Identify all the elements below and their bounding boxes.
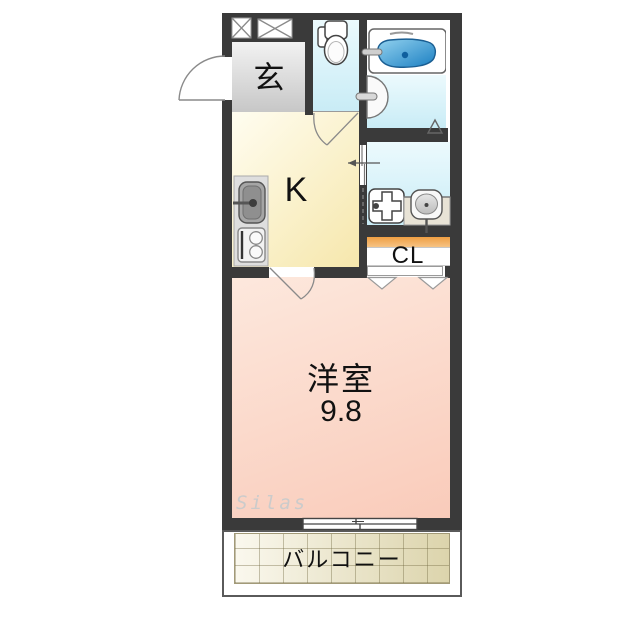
wall-right [450,13,462,530]
wall-top-thin [305,13,462,20]
toilet-floor [313,19,359,112]
kitchen-room-door-opening [269,268,314,277]
wall-closet-right-stub [445,266,450,278]
entrance-door-icon [179,56,225,100]
wall-left-lower [222,100,232,530]
wall-kitchen-bottom-right [314,267,359,278]
kitchen-label: K [285,173,308,207]
entrance-label: 玄 [254,63,285,94]
wall-kitchen-bottom-left [222,267,269,278]
washroom-sliding-door-opening [360,145,366,185]
floor-plan: 玄 K CL 洋室 9.8 バルコニー Silas [0,0,640,640]
wall-top-block [222,13,313,42]
wall-entrance-toilet [305,19,313,115]
wall-washroom-bottom [359,225,450,237]
bathroom-wet-floor [367,75,450,128]
sliding-window-icon [303,519,417,530]
washroom-floor [367,142,450,225]
entrance-door-opening [222,57,232,100]
closet-label: CL [392,244,425,268]
wall-toilet-bath [359,19,367,115]
western-room-size: 9.8 [320,397,362,427]
balcony-label: バルコニー [282,549,402,571]
wall-bottom-right [417,518,462,530]
western-room-label: 洋室 [307,363,375,395]
wall-bottom-left [222,518,303,530]
wall-bath-bottom [359,128,448,142]
watermark: Silas [236,492,308,514]
